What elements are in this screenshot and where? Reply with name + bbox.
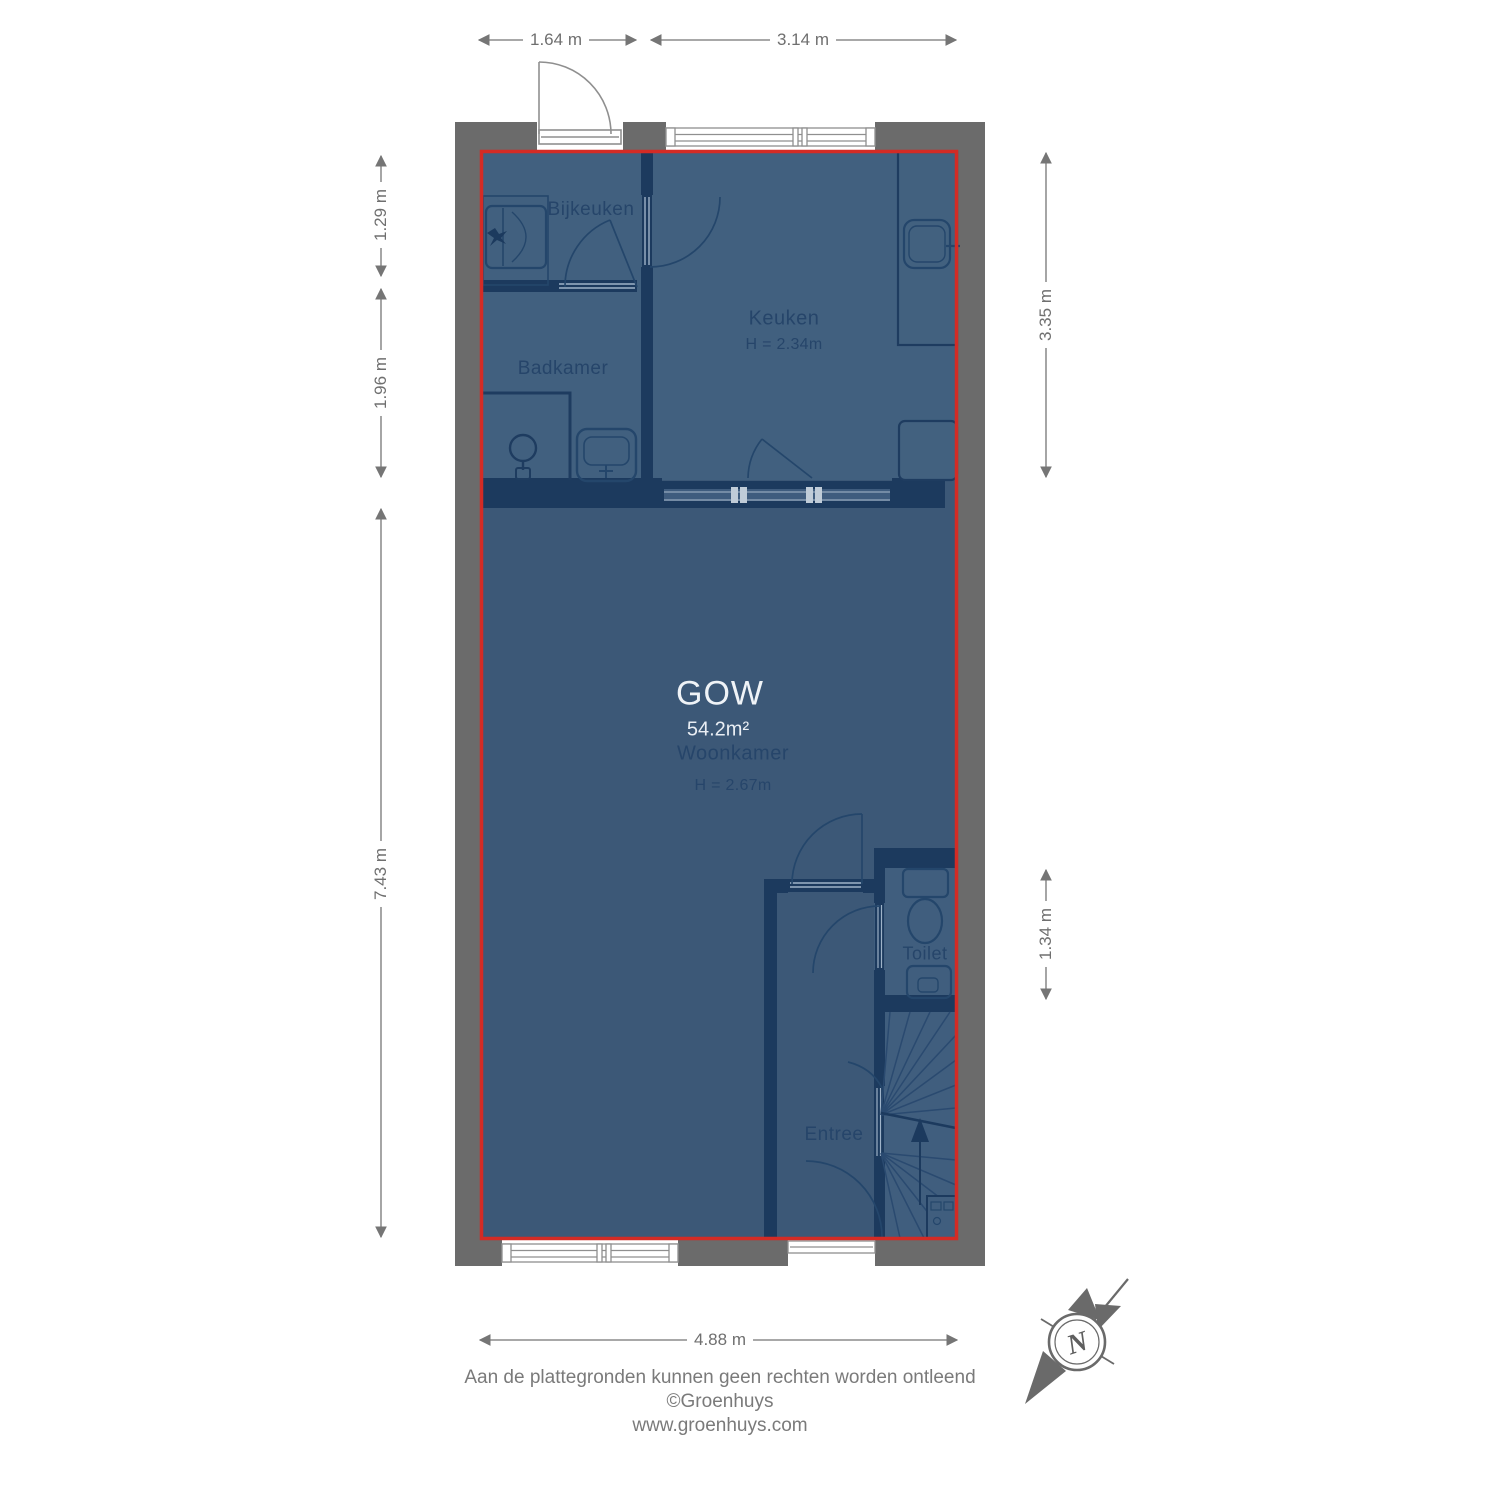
dim-right-lower: 1.34 m [1036, 901, 1056, 967]
room-height-woonkamer: H = 2.67m [695, 777, 772, 795]
exterior-door-top [539, 62, 621, 144]
dim-top-right: 3.14 m [770, 30, 836, 50]
dim-right-upper: 3.35 m [1036, 282, 1056, 348]
interior-glazing [662, 481, 892, 508]
dim-left-middle: 1.96 m [371, 350, 391, 416]
footer: Aan de plattegronden kunnen geen rechten… [430, 1366, 1010, 1438]
room-label-toilet: Toilet [902, 944, 947, 965]
room-label-woonkamer: Woonkamer [677, 743, 789, 766]
compass: N [1025, 1279, 1128, 1404]
footer-website: www.groenhuys.com [430, 1414, 1010, 1438]
footer-copyright: ©Groenhuys [430, 1390, 1010, 1414]
dim-top-left: 1.64 m [523, 30, 589, 50]
window-bottom [502, 1244, 678, 1262]
gow-area: 54.2m² [687, 719, 749, 742]
footer-disclaimer: Aan de plattegronden kunnen geen rechten… [430, 1366, 1010, 1390]
room-height-keuken: H = 2.34m [746, 336, 823, 354]
room-label-badkamer: Badkamer [518, 358, 609, 380]
meter-cupboard [927, 1196, 957, 1238]
room-label-keuken: Keuken [749, 308, 820, 331]
kitchen-counter [898, 152, 960, 345]
gow-code: GOW [676, 675, 764, 714]
dim-left-lower: 7.43 m [371, 841, 391, 907]
floorplan-canvas: N Bijkeuken Badkamer Keuken H = 2.34m GO… [0, 0, 1500, 1500]
dim-bottom: 4.88 m [687, 1330, 753, 1350]
dim-left-upper: 1.29 m [371, 182, 391, 248]
entry-door-threshold [788, 1241, 875, 1253]
kitchen-appliance [899, 421, 957, 480]
room-label-bijkeuken: Bijkeuken [548, 199, 635, 221]
window-top [666, 128, 875, 146]
room-label-entree: Entree [805, 1124, 864, 1146]
